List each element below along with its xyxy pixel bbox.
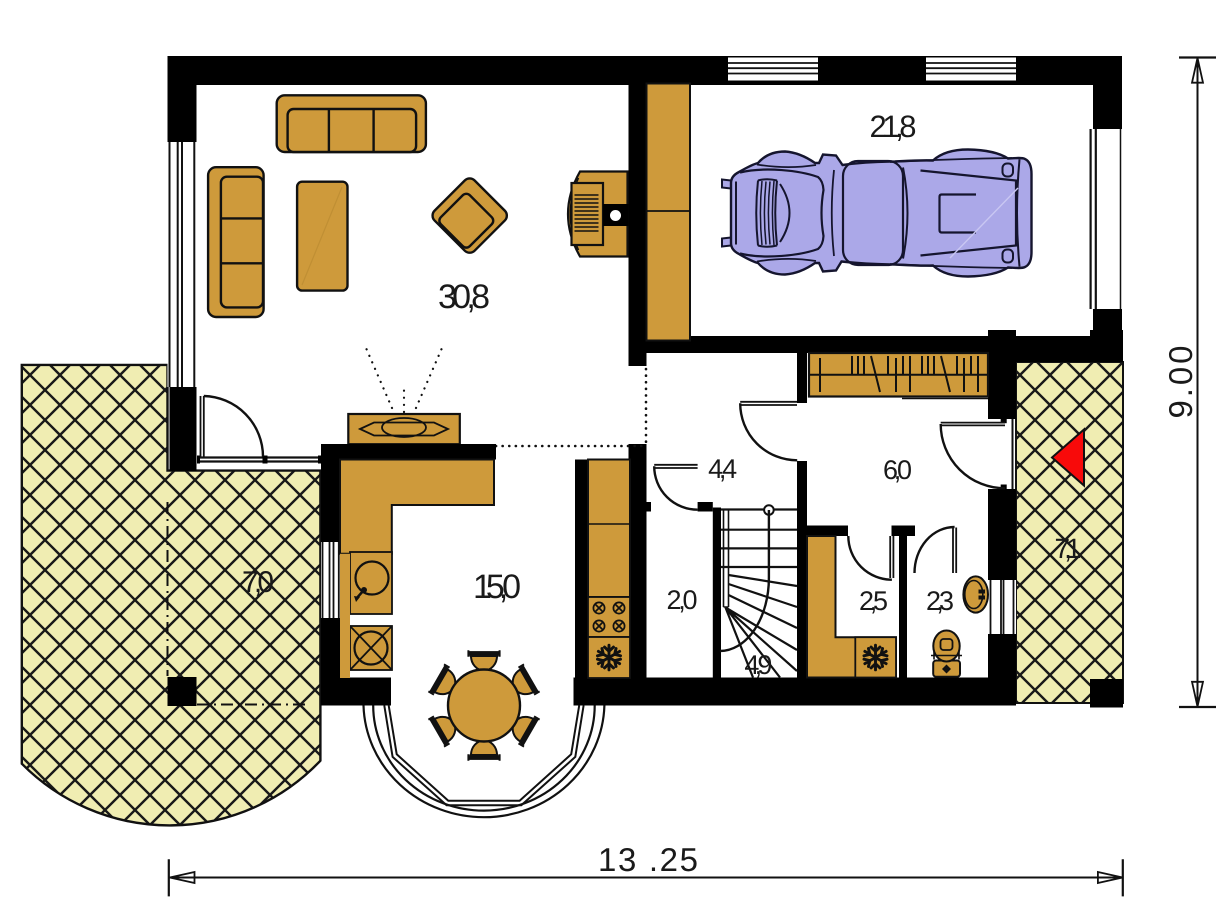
svg-text:30,8: 30,8 [438, 278, 490, 316]
svg-text:7,1: 7,1 [1055, 533, 1082, 564]
svg-text:7,0: 7,0 [242, 566, 274, 599]
svg-text:4,4: 4,4 [708, 454, 737, 484]
svg-text:6,0: 6,0 [883, 455, 912, 485]
svg-text:21,8: 21,8 [870, 109, 917, 144]
svg-text:4,9: 4,9 [744, 650, 772, 680]
svg-text:9.00: 9.00 [1162, 346, 1199, 419]
svg-text:2,3: 2,3 [926, 586, 954, 616]
svg-text:2,0: 2,0 [667, 585, 698, 615]
svg-text:13 .25: 13 .25 [598, 841, 698, 878]
svg-text:15,0: 15,0 [473, 568, 521, 606]
svg-text:2,5: 2,5 [859, 586, 888, 616]
